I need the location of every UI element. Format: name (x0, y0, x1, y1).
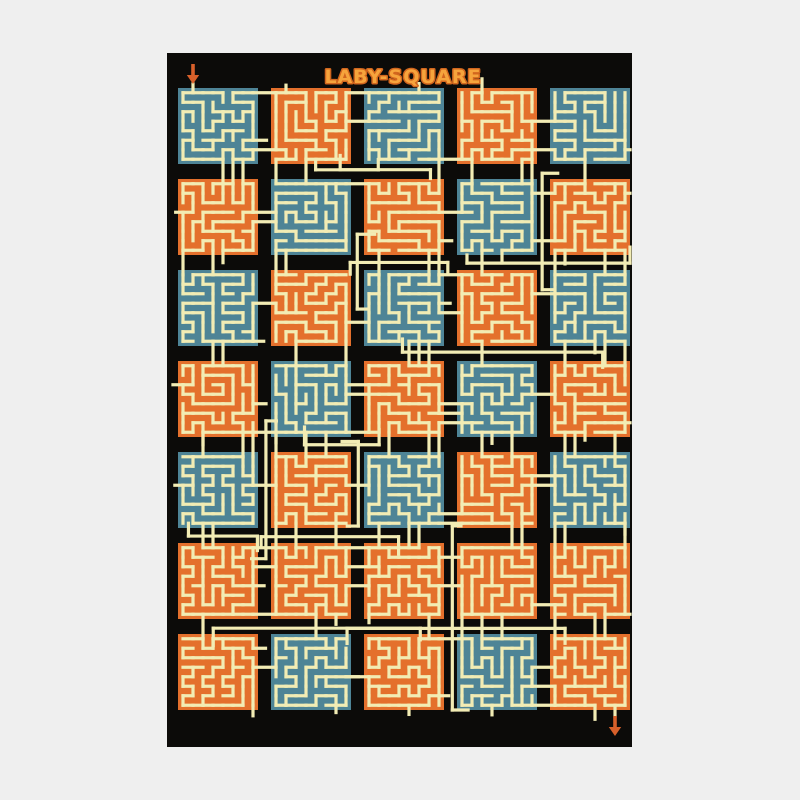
maze-tile (550, 452, 630, 528)
poster-canvas: LABY-SQUARE (167, 53, 632, 747)
maze-tile (550, 270, 630, 346)
maze-tile (457, 179, 537, 255)
page-background: LABY-SQUARE (0, 0, 800, 800)
maze-tile (364, 361, 444, 437)
maze-tiles-layer (178, 88, 630, 710)
exit-arrow-icon (609, 716, 621, 736)
maze-tile (271, 270, 351, 346)
maze-tile (364, 543, 444, 619)
maze-poster: LABY-SQUARE (167, 53, 632, 747)
maze-tile (364, 270, 444, 346)
maze-tile (550, 361, 630, 437)
maze-tile (178, 88, 258, 164)
poster-title: LABY-SQUARE (324, 66, 481, 88)
maze-tile (271, 634, 351, 710)
maze-tile (178, 270, 258, 346)
maze-tile (457, 88, 537, 164)
entry-arrow-icon (187, 64, 199, 84)
maze-tile (550, 179, 630, 255)
maze-tile (457, 270, 537, 346)
maze-tile (178, 179, 258, 255)
maze-tile (364, 179, 444, 255)
maze-tile (271, 88, 351, 164)
maze-tile (178, 361, 258, 437)
maze-tile (550, 88, 630, 164)
maze-tile (364, 452, 444, 528)
maze-tile (457, 634, 537, 710)
maze-tile (550, 634, 630, 710)
maze-tile (178, 452, 258, 528)
maze-tile (457, 361, 537, 437)
maze-tile (364, 634, 444, 710)
maze-tile (550, 543, 630, 619)
maze-tile (457, 543, 537, 619)
maze-tile (364, 88, 444, 164)
maze-tile (178, 543, 258, 619)
maze-tile (271, 179, 351, 255)
maze-tile (178, 634, 258, 710)
maze-tile (271, 361, 351, 437)
maze-tile (271, 543, 351, 619)
maze-tile (457, 452, 537, 528)
maze-tile (271, 452, 351, 528)
